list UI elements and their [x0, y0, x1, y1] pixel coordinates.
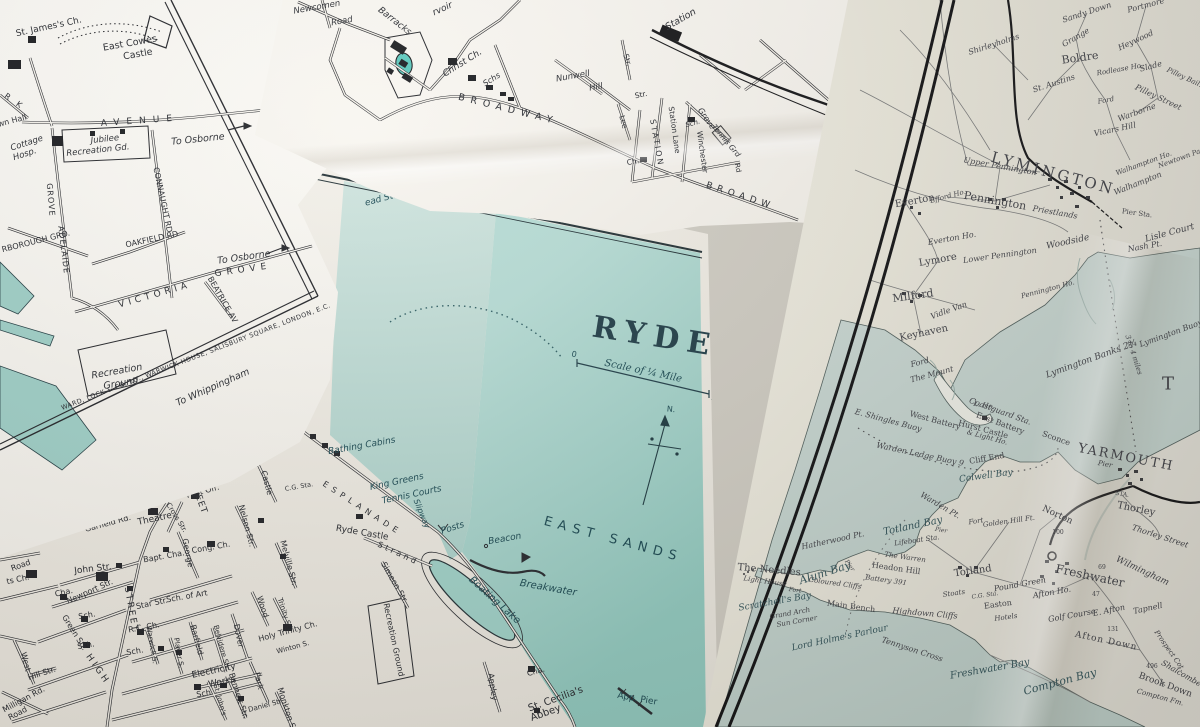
sea-east-of-fold: [462, 212, 706, 727]
photo-canvas: ead Sta EAST SANDS Bathing Cabins King G…: [0, 0, 1200, 727]
map-label: 131: [1107, 627, 1118, 633]
map-label: 496: [1146, 664, 1157, 670]
map-label: T: [1162, 376, 1174, 395]
map-label: GROVE: [44, 183, 55, 217]
compass-north-label: N.: [666, 405, 675, 414]
scale-quarter-label: ¼: [709, 396, 718, 406]
map-label: Rd: [732, 163, 741, 174]
map-label: 47: [1092, 592, 1100, 598]
map-label: 100: [1052, 530, 1063, 536]
map-label: 69: [1098, 565, 1106, 571]
